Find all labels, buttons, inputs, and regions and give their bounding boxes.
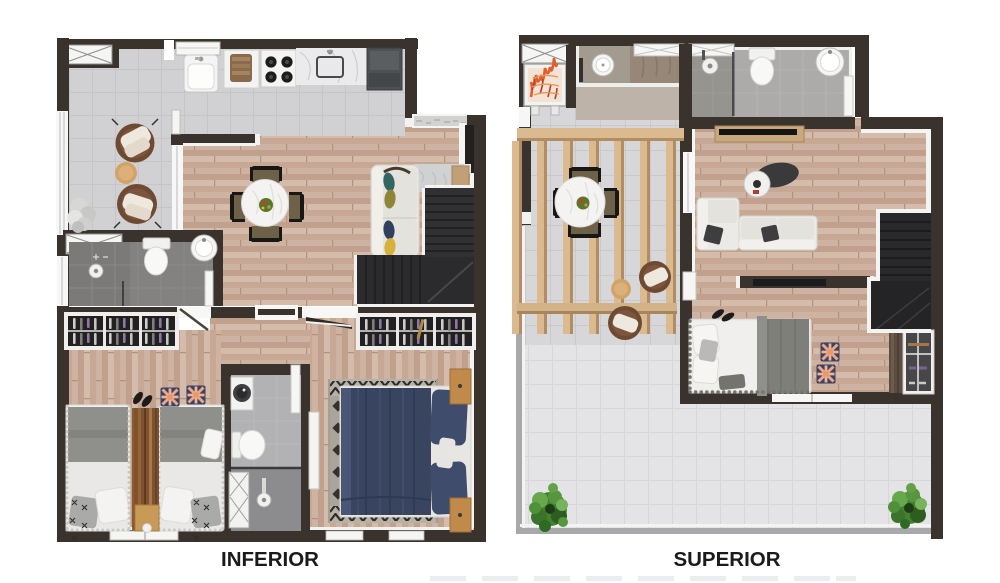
svg-text:INFERIOR: INFERIOR: [221, 548, 319, 571]
svg-text:SUPERIOR: SUPERIOR: [673, 548, 780, 571]
